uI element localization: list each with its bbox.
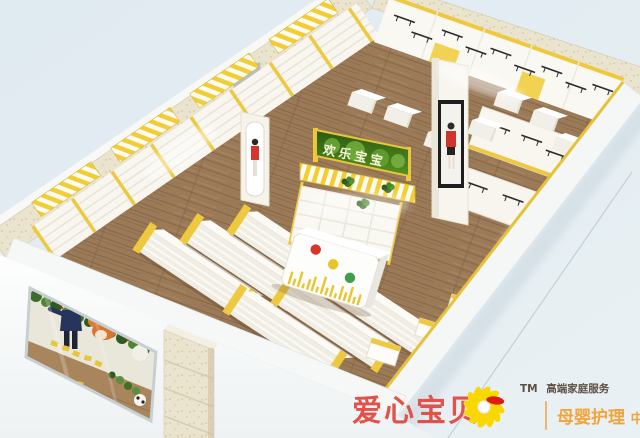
poster-pillar-left	[241, 112, 269, 206]
brand-trademark: TM	[520, 383, 538, 395]
brand-tagline: 高端家庭服务	[546, 382, 609, 395]
brand-service-main: 母婴护理	[557, 407, 625, 428]
facade-pillar	[164, 324, 218, 438]
brand-name: 爱心宝贝	[352, 394, 480, 429]
svg-text:母婴护理 中心: 母婴护理 中心	[557, 407, 640, 428]
brand-service-suffix: 中心	[631, 411, 640, 427]
svg-text:TM 高端家庭服务: TM 高端家庭服务	[520, 382, 610, 395]
store-render-scene: 欢乐宝宝	[0, 0, 640, 438]
window-ball	[134, 394, 146, 406]
store-render-image: 欢乐宝宝	[0, 0, 640, 438]
